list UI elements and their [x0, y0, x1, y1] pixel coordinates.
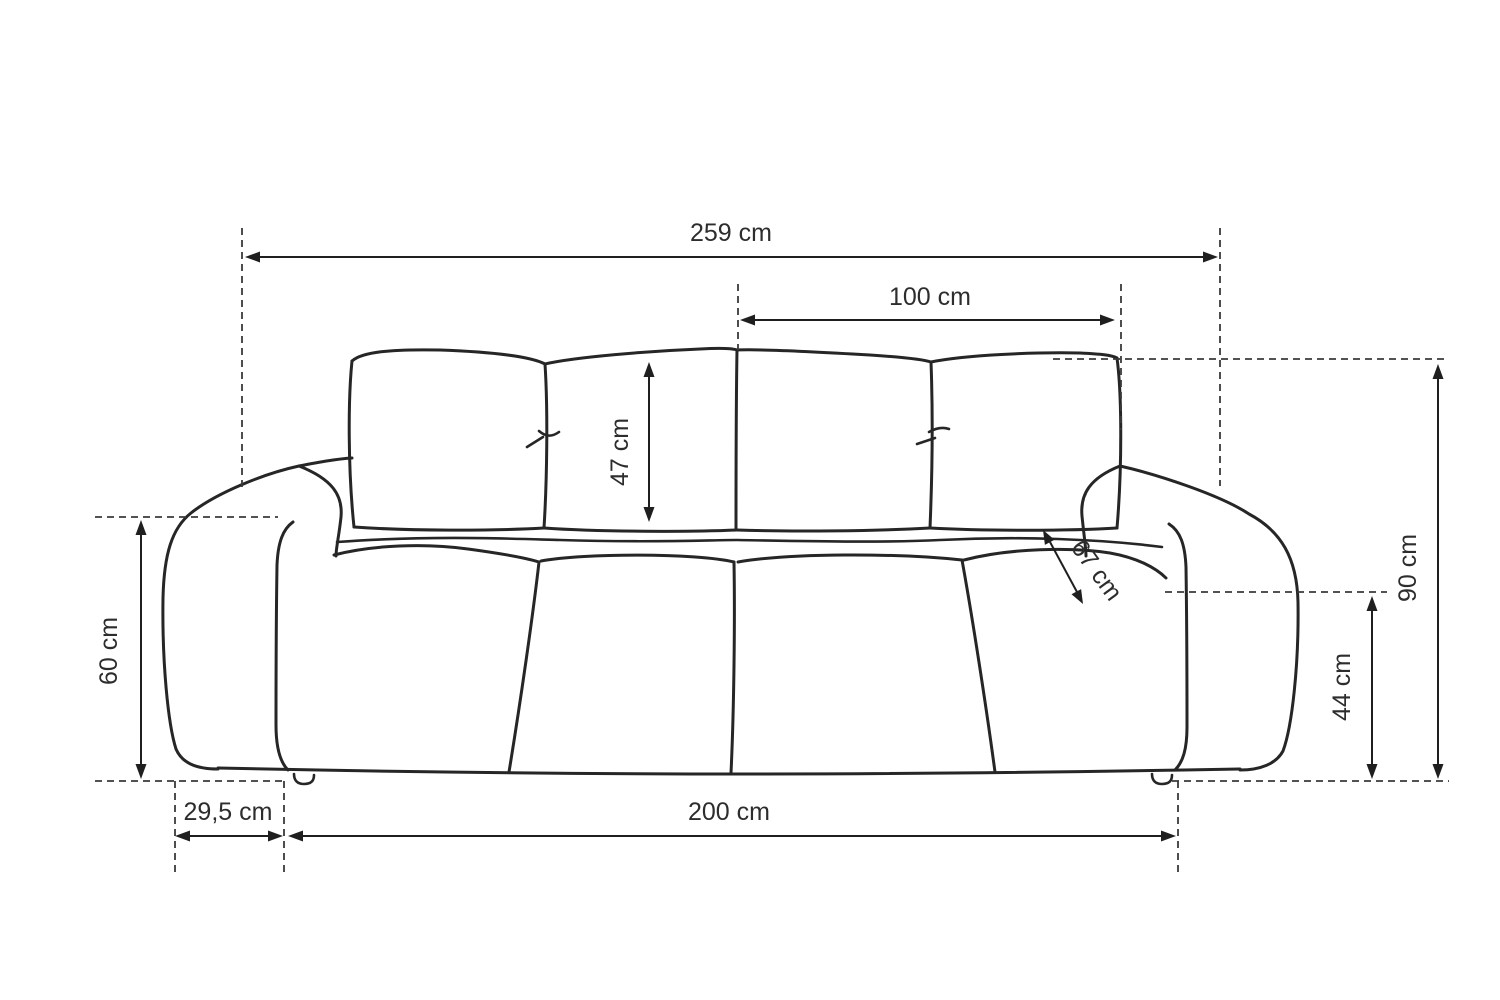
left-foot [294, 774, 314, 784]
arrowhead-top [136, 520, 147, 535]
dimension-seat-width: 200 cm [288, 798, 1176, 842]
dim-label-armrest-height: 60 cm [95, 617, 123, 685]
back-cushion-seam-1 [544, 364, 547, 528]
back-cushion-seam-2 [736, 350, 737, 530]
right-armrest [1082, 466, 1298, 770]
arrowhead-top [1433, 364, 1444, 379]
seat-cushion-3-top [738, 555, 962, 562]
arrowhead-left [175, 831, 190, 842]
dim-label-seat-width: 200 cm [688, 798, 770, 826]
seat-cushion-2-top [541, 555, 734, 562]
sofa-illustration [163, 348, 1298, 784]
back-cushion-4-bottom-edge [930, 528, 1117, 530]
dim-label-back-cushion-height: 47 cm [606, 418, 634, 486]
sofa-base [218, 768, 1240, 784]
back-cushion-1 [349, 350, 545, 530]
back-cushion-3-bottom-edge [737, 528, 930, 531]
back-cushion-1-left-edge [349, 361, 354, 527]
back-cushion-3 [736, 350, 931, 531]
dimension-seat-height: 44 cm [1328, 596, 1378, 779]
back-cushion-2-bottom-edge [544, 528, 737, 531]
arrowhead-bottom [644, 507, 655, 522]
dimension-cushion-width: 100 cm [740, 283, 1115, 326]
dimension-back-cushion-height: 47 cm [606, 362, 655, 522]
dim-label-total-height: 90 cm [1394, 534, 1422, 602]
arrowhead-bottom [136, 764, 147, 779]
diagram-canvas: 259 cm 100 cm 47 cm 67 cm 90 [0, 0, 1500, 1000]
left-armrest-outer-edge [163, 466, 299, 769]
arrowhead-top [1367, 596, 1378, 611]
stitch-stroke [527, 437, 543, 447]
dimension-total-width: 259 cm [245, 219, 1218, 263]
back-cushion-1-bottom-edge [354, 527, 544, 530]
arrowhead-bottom [1072, 589, 1084, 604]
left-armrest-inner-edge [299, 466, 341, 556]
arrowhead-left [288, 831, 303, 842]
seat-seam-center [731, 562, 734, 773]
arrowhead-bottom [1433, 764, 1444, 779]
arrowhead-right [1203, 252, 1218, 263]
right-armrest-outer-edge [1120, 466, 1298, 770]
seat-seam-left [509, 562, 539, 772]
right-foot [1152, 774, 1172, 784]
dimension-total-height: 90 cm [1394, 364, 1444, 779]
seat-platform-line [337, 538, 1162, 547]
arrowhead-right [268, 831, 283, 842]
seat-seam-right [962, 560, 995, 772]
back-cushion-seam-3 [930, 362, 932, 528]
sofa-dimension-diagram: 259 cm 100 cm 47 cm 67 cm 90 [0, 0, 1500, 1000]
back-cushion-4-top-edge [931, 353, 1117, 362]
left-armrest-front-panel [276, 522, 293, 770]
base-bottom-edge [218, 768, 1240, 774]
dimension-armrest-height: 60 cm [95, 520, 147, 779]
arrowhead-right [1161, 831, 1176, 842]
dim-label-armrest-width: 29,5 cm [184, 798, 273, 826]
seat-cushion-1-top [334, 546, 539, 562]
dim-label-seat-height: 44 cm [1328, 653, 1356, 721]
back-cushion-3-top-edge [737, 350, 931, 362]
dim-label-total-width: 259 cm [690, 219, 772, 247]
stitch-mark-left [527, 431, 559, 447]
back-cushion-1-top-edge [352, 350, 545, 364]
arrowhead-left [740, 315, 755, 326]
extension-lines [95, 228, 1449, 874]
back-cushion-2 [544, 348, 737, 531]
seat-cushions [334, 546, 1166, 773]
arrowhead-right [1100, 315, 1115, 326]
back-cushion-4 [930, 353, 1121, 530]
dim-label-cushion-width: 100 cm [889, 283, 971, 311]
left-armrest-back-join [299, 458, 352, 466]
back-cushion-2-top-edge [545, 348, 737, 364]
stitch-stroke [539, 431, 559, 436]
seat-cushion-4-top [964, 549, 1166, 578]
arrowhead-top [644, 362, 655, 377]
left-armrest [163, 458, 352, 770]
arrowhead-bottom [1367, 764, 1378, 779]
right-armrest-front-panel [1169, 524, 1187, 770]
dimension-armrest-width: 29,5 cm [175, 798, 283, 842]
arrowhead-left [245, 252, 260, 263]
